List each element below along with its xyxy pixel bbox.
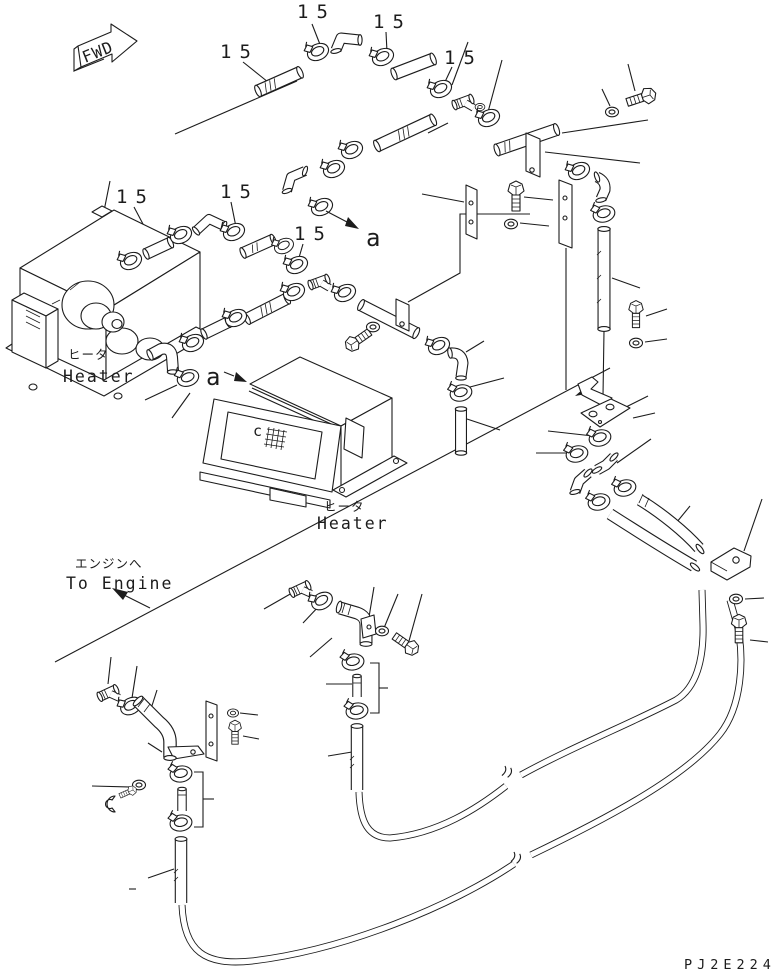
bracket-strip — [206, 701, 217, 761]
view-marker-label: a — [206, 363, 220, 391]
tube-bracket — [526, 133, 540, 177]
water-tube — [174, 837, 187, 903]
part-label-15: 15 — [444, 47, 483, 69]
washer — [505, 219, 518, 229]
part-label-15: 15 — [294, 223, 333, 245]
heater-caption-jp: ヒータ — [324, 499, 365, 514]
water-tube — [455, 407, 466, 455]
drawing-code: PJ2E224 — [684, 957, 776, 973]
parts-diagram-page: c — [0, 0, 781, 979]
view-marker-label: a — [366, 224, 380, 252]
pipe-nipple — [178, 787, 186, 811]
hose-bracket-tab — [361, 615, 376, 638]
heater-piping-diagram: c — [0, 0, 781, 979]
part-label-15: 15 — [373, 11, 412, 33]
bracket-strip — [466, 185, 477, 239]
washer — [630, 338, 643, 348]
water-tube — [350, 724, 363, 790]
heater-caption-en: Heater — [317, 514, 389, 533]
washer — [475, 103, 485, 110]
washer — [376, 626, 389, 636]
bracket-strip — [559, 180, 572, 248]
pipe-nipple — [353, 674, 361, 697]
part-label-15: 15 — [220, 41, 259, 63]
washer — [606, 107, 619, 117]
washer — [367, 322, 380, 332]
core-marker: c — [253, 422, 262, 440]
water-tube — [597, 227, 610, 332]
part-label-15: 15 — [297, 1, 336, 23]
washer — [730, 594, 743, 604]
to-engine-jp: エンジンへ — [75, 556, 143, 571]
washer — [227, 709, 238, 717]
part-label-15: 15 — [220, 181, 259, 203]
heater-caption-en: Heater — [63, 367, 135, 386]
part-label-15: 15 — [116, 186, 155, 208]
heater-caption-jp: ヒータ — [68, 347, 109, 362]
